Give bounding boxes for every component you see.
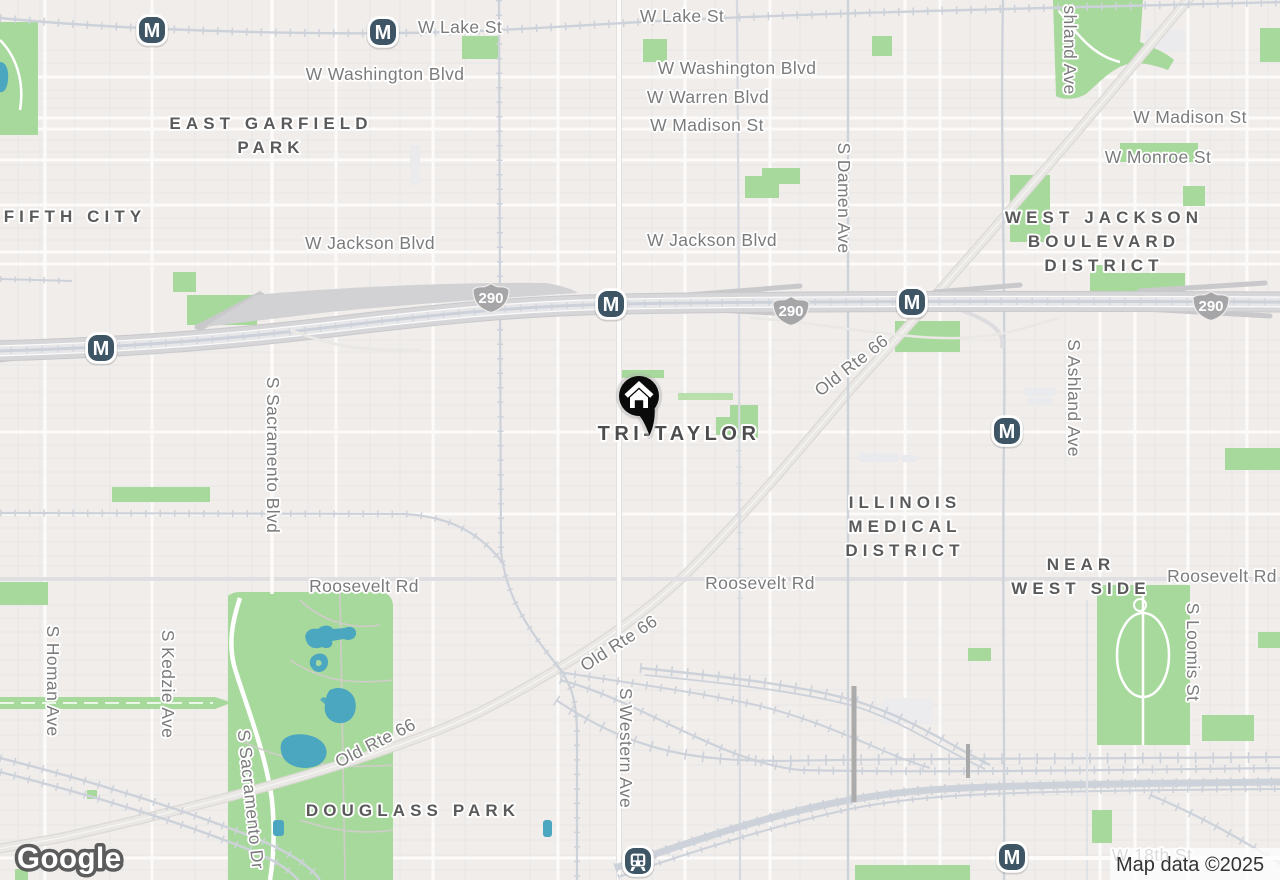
svg-text:W Madison St: W Madison St (650, 115, 764, 135)
svg-text:M: M (1004, 847, 1021, 869)
svg-text:Google: Google (17, 842, 122, 875)
svg-text:M: M (999, 421, 1016, 443)
svg-text:ILLINOIS: ILLINOIS (849, 493, 962, 512)
svg-text:Roosevelt Rd: Roosevelt Rd (705, 573, 815, 593)
svg-text:W Lake St: W Lake St (640, 6, 724, 26)
svg-text:W Washington Blvd: W Washington Blvd (658, 58, 817, 78)
svg-text:S Sacramento Blvd: S Sacramento Blvd (263, 377, 283, 534)
svg-text:S Loomis St: S Loomis St (1183, 603, 1203, 702)
svg-text:W Jackson Blvd: W Jackson Blvd (647, 230, 777, 250)
svg-text:M: M (93, 338, 110, 360)
svg-text:290: 290 (1198, 298, 1223, 315)
svg-text:W Washington Blvd: W Washington Blvd (306, 64, 465, 84)
svg-text:S Homan Ave: S Homan Ave (43, 625, 63, 736)
svg-text:W Madison St: W Madison St (1133, 107, 1247, 127)
svg-text:EAST GARFIELD: EAST GARFIELD (169, 114, 372, 133)
svg-text:W Warren Blvd: W Warren Blvd (647, 87, 769, 107)
svg-text:290: 290 (478, 290, 503, 307)
svg-text:S Damen Ave: S Damen Ave (834, 142, 854, 253)
svg-text:TRI-TAYLOR: TRI-TAYLOR (598, 423, 761, 445)
svg-text:shland Ave: shland Ave (1060, 5, 1080, 94)
svg-text:Roosevelt Rd: Roosevelt Rd (1167, 566, 1277, 586)
svg-text:290: 290 (778, 303, 803, 320)
svg-text:WEST JACKSON: WEST JACKSON (1005, 208, 1203, 227)
svg-text:DISTRICT: DISTRICT (845, 541, 964, 560)
svg-text:M: M (904, 292, 921, 314)
svg-text:BOULEVARD: BOULEVARD (1028, 232, 1180, 251)
svg-text:W Monroe St: W Monroe St (1105, 147, 1212, 167)
svg-text:WEST SIDE: WEST SIDE (1011, 579, 1150, 598)
svg-text:Map data ©2025: Map data ©2025 (1116, 854, 1264, 876)
svg-text:S Ashland Ave: S Ashland Ave (1064, 339, 1084, 457)
svg-text:DISTRICT: DISTRICT (1044, 256, 1163, 275)
svg-text:M: M (144, 20, 161, 42)
svg-text:W Lake St: W Lake St (418, 17, 502, 37)
svg-text:PARK: PARK (237, 138, 304, 157)
svg-text:Roosevelt Rd: Roosevelt Rd (309, 576, 419, 596)
svg-text:MEDICAL: MEDICAL (848, 517, 961, 536)
svg-text:S Kedzie Ave: S Kedzie Ave (158, 630, 178, 739)
svg-text:M: M (375, 22, 392, 44)
svg-text:NEAR: NEAR (1047, 555, 1116, 574)
svg-text:W Jackson Blvd: W Jackson Blvd (305, 233, 435, 253)
svg-text:S Western Ave: S Western Ave (616, 688, 636, 808)
svg-text:DOUGLASS PARK: DOUGLASS PARK (306, 801, 520, 820)
svg-text:FIFTH CITY: FIFTH CITY (4, 207, 147, 226)
svg-text:M: M (603, 294, 620, 316)
